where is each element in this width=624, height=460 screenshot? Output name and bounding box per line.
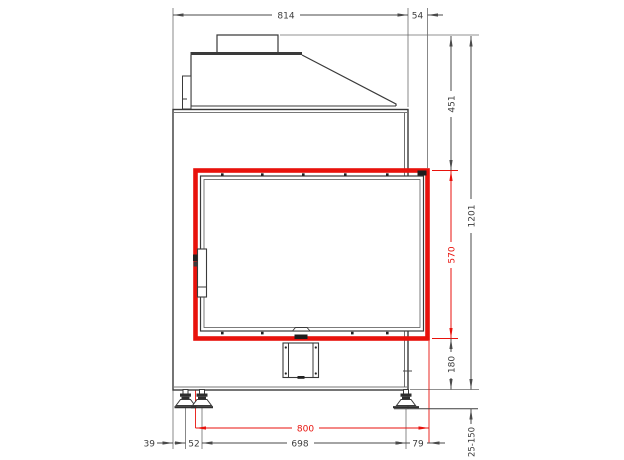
adjustable-feet — [175, 390, 420, 408]
foot-nut — [180, 394, 191, 397]
foot-cone — [176, 400, 195, 406]
screw-dot — [351, 332, 354, 335]
screw-dot — [302, 173, 305, 176]
screw-dot — [386, 332, 389, 335]
hood-slope — [302, 55, 396, 106]
handle-hinge-mark — [194, 262, 198, 267]
screw-dot — [261, 173, 264, 176]
drawer-screw — [285, 346, 287, 348]
dim-body-width: 814 — [277, 12, 294, 22]
screw-dot — [221, 332, 224, 335]
dim-lower-section-height: 180 — [448, 356, 458, 373]
drawer-screw — [315, 346, 317, 348]
adjustable-foot — [393, 390, 419, 408]
dim-feet-span: 698 — [291, 440, 308, 450]
dim-foot-pair-spacing: 52 — [188, 440, 199, 450]
foot-stem — [183, 390, 188, 395]
foot-nut — [401, 394, 412, 397]
screw-dot — [221, 173, 224, 176]
screw-dot — [261, 332, 264, 335]
foot-stem — [200, 390, 205, 395]
drawer-stop — [298, 376, 305, 379]
handle-bar — [198, 249, 207, 297]
side-bracket — [183, 76, 192, 109]
dim-upper-section-height: 451 — [448, 95, 458, 112]
dim-frame-opening-height: 570 — [448, 246, 458, 263]
dim-foot-to-frame-edge: 79 — [412, 440, 424, 450]
dim-right-side-offset: 54 — [412, 12, 424, 22]
drawer-screw — [315, 372, 317, 374]
foot-stem — [404, 390, 409, 395]
dim-left-edge-to-foot: 39 — [144, 440, 156, 450]
handle-hinge-mark — [193, 255, 198, 262]
dim-foot-height-range: 25-150 — [468, 427, 478, 457]
door-bottom-latch — [293, 328, 311, 332]
latch-plate — [295, 335, 308, 340]
adjustable-foot — [191, 390, 213, 408]
foot-nut — [197, 394, 208, 397]
upper-structure — [183, 35, 397, 109]
fireplace-front-elevation: 814 54 451 570 180 1201 25-150 39 52 698… — [0, 0, 624, 460]
door-frame — [201, 176, 424, 331]
ash-drawer-guide — [283, 343, 319, 379]
flue-collar — [217, 35, 278, 53]
technical-drawing-canvas: 814 54 451 570 180 1201 25-150 39 52 698… — [0, 0, 624, 460]
dim-frame-width: 800 — [297, 425, 314, 435]
drawer-screw — [285, 372, 287, 374]
dim-total-height: 1201 — [468, 205, 478, 228]
door-latch-top-right — [418, 171, 427, 176]
screw-dot — [344, 173, 347, 176]
screw-dot — [386, 173, 389, 176]
foot-cone — [397, 400, 416, 406]
